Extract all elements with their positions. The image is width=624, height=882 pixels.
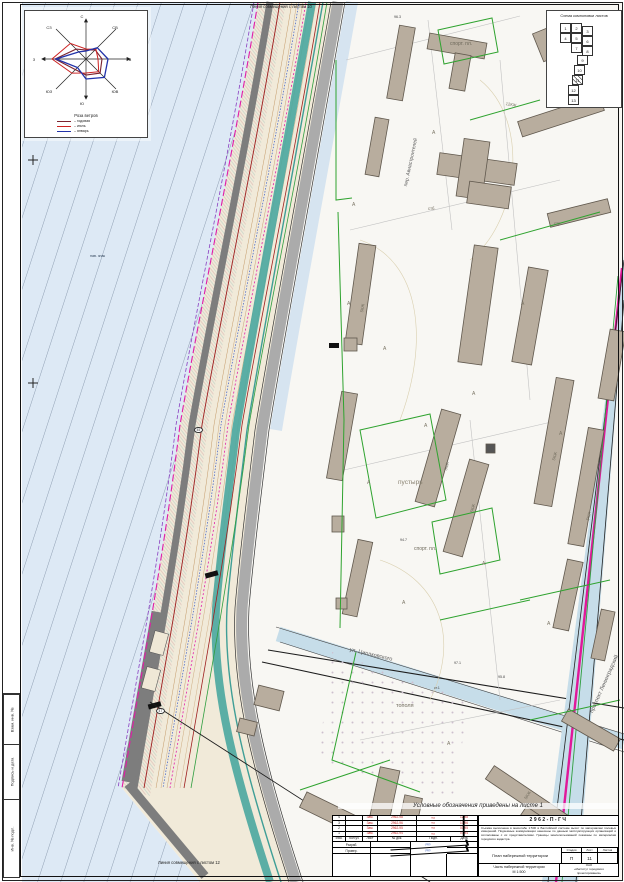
scheme-sheet-cell: 6 bbox=[582, 36, 593, 46]
wind-rose-legend: Роза ветров – годовая– июль– январь bbox=[25, 113, 147, 134]
wind-rose-direction: СВ bbox=[112, 25, 118, 30]
scheme-sheet-cell: 12 bbox=[568, 85, 579, 95]
side-stamp-strip: Взам. инв. №Подпись и датаИнв. № подл. bbox=[3, 693, 20, 878]
stage-value: П bbox=[562, 853, 582, 863]
scheme-sheet-cell: 5 bbox=[571, 33, 582, 43]
wind-rose-direction: ЮЗ bbox=[46, 89, 52, 94]
title-block-filler bbox=[333, 854, 478, 876]
wind-rose-panel: ССВВЮВЮЮЗЗСЗ Роза ветров – годовая– июль… bbox=[24, 10, 148, 138]
scheme-sheet-cell: 2 bbox=[571, 23, 582, 33]
wind-rose-direction: С bbox=[81, 14, 84, 19]
sheet-number: 11 bbox=[582, 853, 598, 863]
side-stamp-label: Подпись и дата bbox=[9, 758, 14, 787]
side-stamp-cell: Подпись и дата bbox=[4, 744, 19, 799]
scheme-sheet-cell: 1 bbox=[560, 23, 571, 33]
side-stamp-cell: Взам. инв. № bbox=[4, 694, 19, 744]
legend-note: Условные обозначения приведены на листе … bbox=[338, 803, 618, 809]
legend-label: – годовая bbox=[74, 120, 90, 124]
title-block: 4Зам.2962-98≈12.983Зам.2962-96≈10.962Зам… bbox=[332, 815, 619, 877]
wind-rose-direction: З bbox=[33, 57, 35, 62]
legend-label: – январь bbox=[74, 130, 89, 134]
legend-line-sample-icon bbox=[57, 131, 71, 132]
title-block-main: 2962-П-ГЧ Съёмка выполнена в масштабе 1:… bbox=[479, 816, 618, 876]
title-block-revisions: 4Зам.2962-98≈12.983Зам.2962-96≈10.962Зам… bbox=[333, 816, 479, 876]
revision-cell: ≈ bbox=[403, 832, 464, 837]
scheme-sheet-cell: 9 bbox=[577, 55, 588, 65]
drawing-title: План набережной территории bbox=[479, 848, 562, 863]
wind-rose-direction: ЮВ bbox=[112, 89, 119, 94]
document-code: 2962-П-ГЧ bbox=[479, 816, 618, 826]
wind-rose-direction: Ю bbox=[80, 101, 84, 106]
scheme-sheet-cell: 13 bbox=[568, 95, 579, 105]
scheme-sheet-cell: 4 bbox=[560, 33, 571, 43]
scheme-sheet-cell: 11 bbox=[572, 75, 583, 85]
scheme-sheet-cell: 10 bbox=[574, 65, 585, 75]
legend-line-sample-icon bbox=[57, 126, 71, 127]
scheme-title: Схема компоновки листов bbox=[547, 13, 621, 18]
organization-name: ОАО «Институт городского проектирования» bbox=[560, 864, 618, 876]
scheme-sheet-cell: 7 bbox=[571, 43, 582, 53]
legend-line-sample-icon bbox=[57, 121, 71, 122]
document-description: Съёмка выполнена в масштабе 1:500 в Балт… bbox=[479, 826, 618, 848]
scheme-sheet-cell: 3 bbox=[582, 26, 593, 36]
drawing-subtitle: Часть набережной территории М 1:500 bbox=[479, 864, 560, 876]
wind-rose-title: Роза ветров bbox=[25, 113, 147, 118]
sheet-layout-scheme: Схема компоновки листов 1234567891011121… bbox=[546, 10, 622, 108]
sheets-total bbox=[598, 853, 618, 863]
side-stamp-cell: Инв. № подл. bbox=[4, 799, 19, 877]
wind-rose-legend-row: – январь bbox=[57, 129, 115, 134]
map-sheet: Взам. инв. №Подпись и датаИнв. № подл. С… bbox=[0, 0, 624, 882]
side-stamp-label: Взам. инв. № bbox=[9, 707, 14, 732]
wind-rose-direction: СЗ bbox=[46, 25, 51, 30]
wind-rose-direction: В bbox=[129, 57, 132, 62]
legend-label: – июль bbox=[74, 125, 86, 129]
side-stamp-label: Инв. № подл. bbox=[9, 826, 14, 851]
